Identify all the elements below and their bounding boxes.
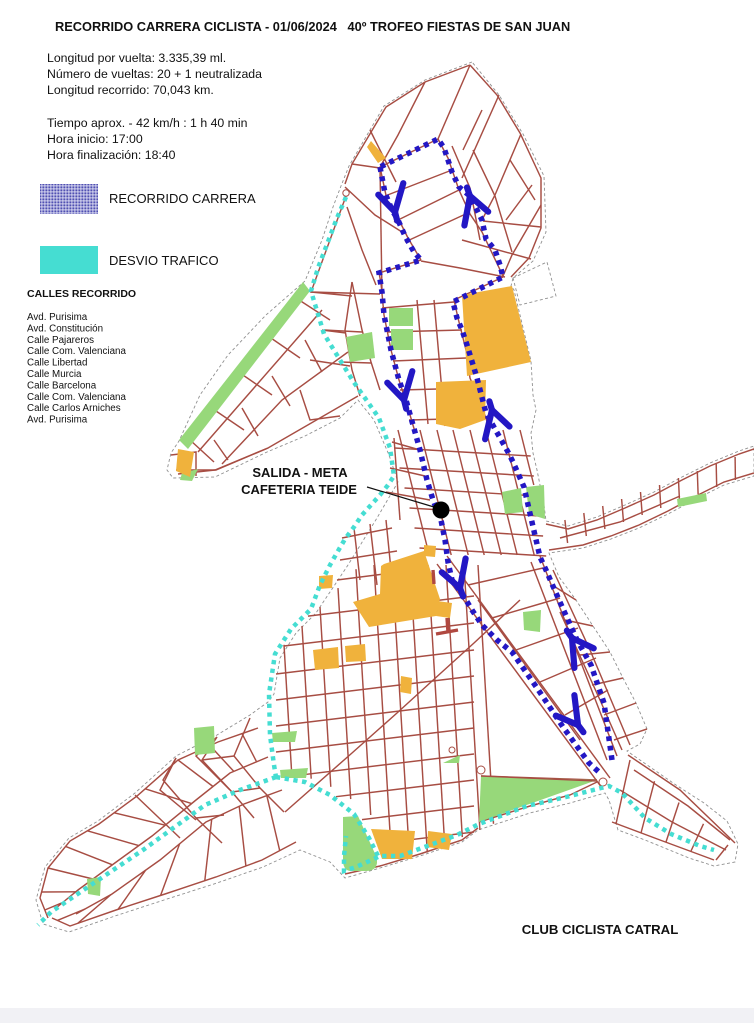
svg-text:Avd. Constitución: Avd. Constitución [27, 323, 103, 334]
svg-text:Avd. Purisima: Avd. Purisima [27, 415, 88, 426]
svg-text:CALLES RECORRIDO: CALLES RECORRIDO [27, 288, 136, 300]
svg-text:DESVIO TRAFICO: DESVIO TRAFICO [109, 253, 219, 268]
svg-text:Número de vueltas: 20 + 1 neut: Número de vueltas: 20 + 1 neutralizada [47, 67, 262, 81]
svg-text:Tiempo aprox. - 42 km/h : 1 h: Tiempo aprox. - 42 km/h : 1 h 40 min [47, 116, 248, 130]
svg-text:Calle Com. Valenciana: Calle Com. Valenciana [27, 392, 126, 403]
svg-text:RECORRIDO CARRERA CICLISTA - 0: RECORRIDO CARRERA CICLISTA - 01/06/2024 … [55, 19, 570, 34]
svg-text:Calle Libertad: Calle Libertad [27, 358, 87, 369]
svg-text:Longitud por vuelta: 3.335,39: Longitud por vuelta: 3.335,39 ml. [47, 51, 226, 65]
svg-text:Hora inicio: 17:00: Hora inicio: 17:00 [47, 132, 143, 146]
svg-text:RECORRIDO CARRERA: RECORRIDO CARRERA [109, 191, 256, 206]
svg-text:Calle Pajareros: Calle Pajareros [27, 335, 94, 346]
svg-text:Calle Barcelona: Calle Barcelona [27, 380, 97, 391]
svg-text:Avd. Purisima: Avd. Purisima [27, 312, 88, 323]
svg-text:Hora finalización: 18:40: Hora finalización: 18:40 [47, 148, 176, 162]
svg-text:CAFETERIA TEIDE: CAFETERIA TEIDE [241, 482, 357, 497]
svg-text:CLUB CICLISTA CATRAL: CLUB CICLISTA CATRAL [522, 922, 679, 937]
svg-text:SALIDA - META: SALIDA - META [252, 465, 348, 480]
svg-text:Longitud recorrido: 70,043 km.: Longitud recorrido: 70,043 km. [47, 83, 214, 97]
svg-text:Calle Murcia: Calle Murcia [27, 369, 82, 380]
svg-text:Calle Com. Valenciana: Calle Com. Valenciana [27, 346, 126, 357]
svg-text:Calle Carlos Arniches: Calle Carlos Arniches [27, 403, 121, 414]
